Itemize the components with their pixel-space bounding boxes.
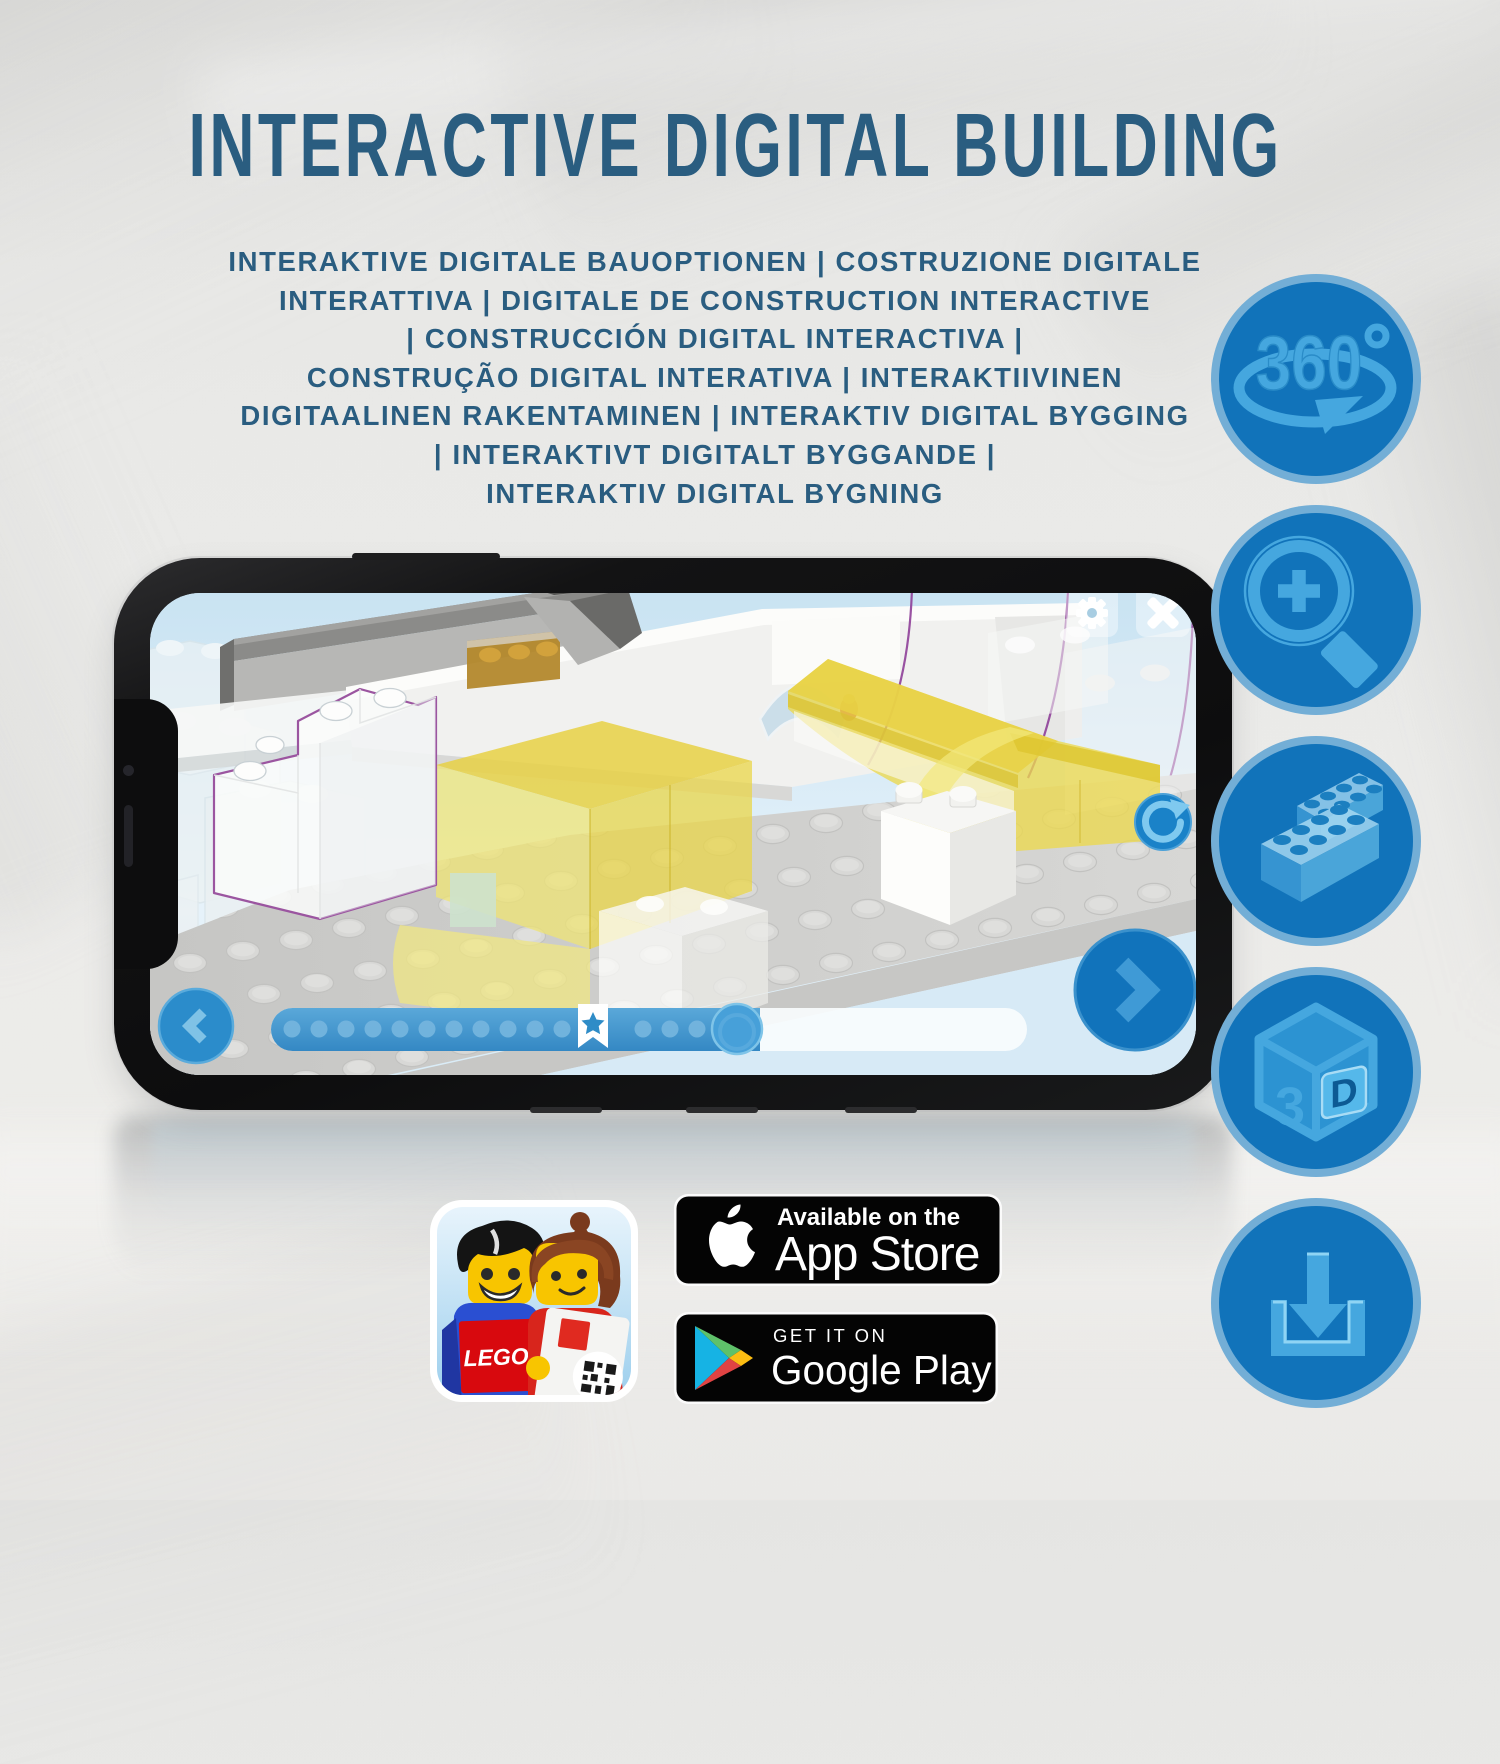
svg-text:App Store: App Store <box>775 1228 979 1281</box>
svg-text:360: 360 <box>1256 320 1363 406</box>
svg-text:GET IT ON: GET IT ON <box>773 1325 887 1346</box>
svg-text:LEGO: LEGO <box>463 1343 529 1371</box>
svg-text:Available on the: Available on the <box>777 1204 960 1231</box>
svg-text:3: 3 <box>1275 1077 1305 1137</box>
svg-text:D: D <box>1330 1069 1357 1117</box>
svg-text:Google Play: Google Play <box>771 1347 992 1393</box>
